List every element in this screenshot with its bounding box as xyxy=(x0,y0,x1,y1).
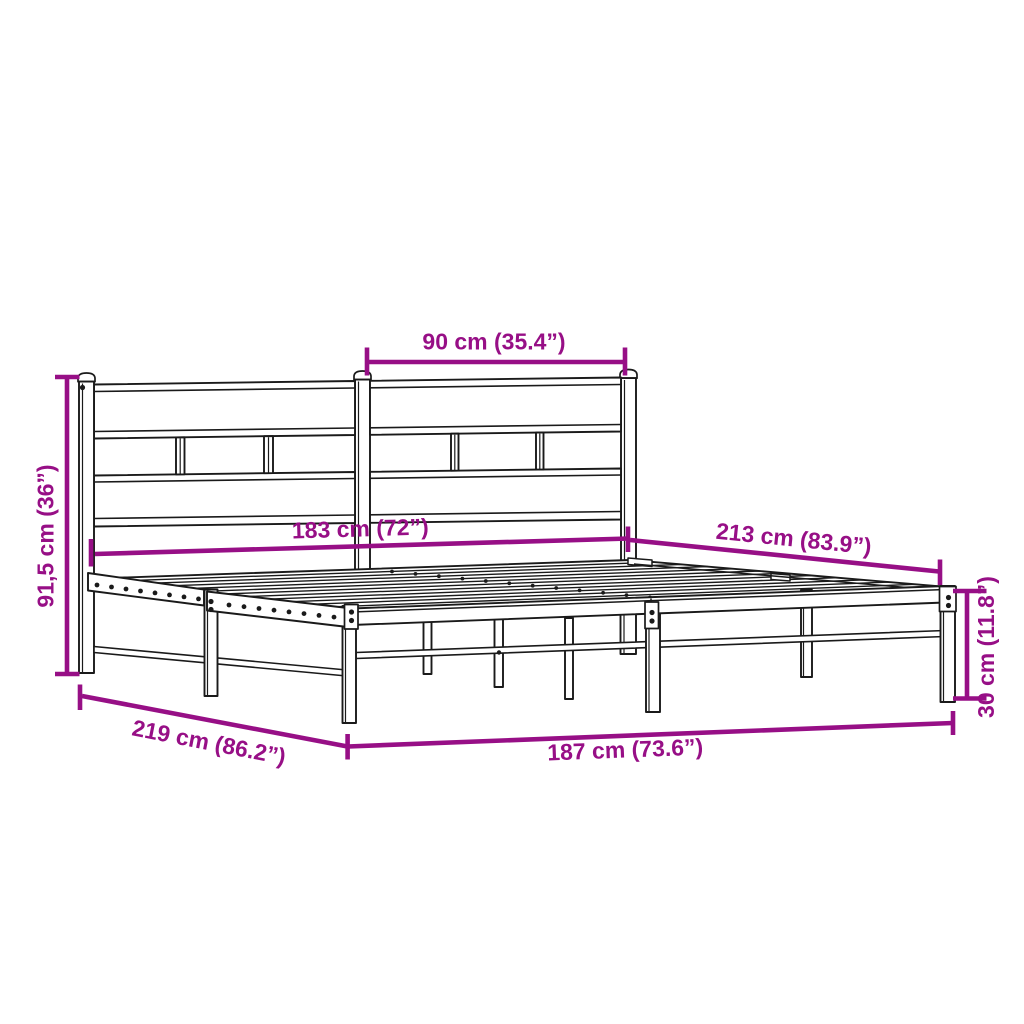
svg-text:30 cm (11.8”): 30 cm (11.8”) xyxy=(973,576,999,718)
svg-text:90 cm (35.4”): 90 cm (35.4”) xyxy=(422,329,565,355)
svg-text:183 cm (72”): 183 cm (72”) xyxy=(292,513,430,543)
svg-text:91,5 cm (36”): 91,5 cm (36”) xyxy=(33,464,59,607)
